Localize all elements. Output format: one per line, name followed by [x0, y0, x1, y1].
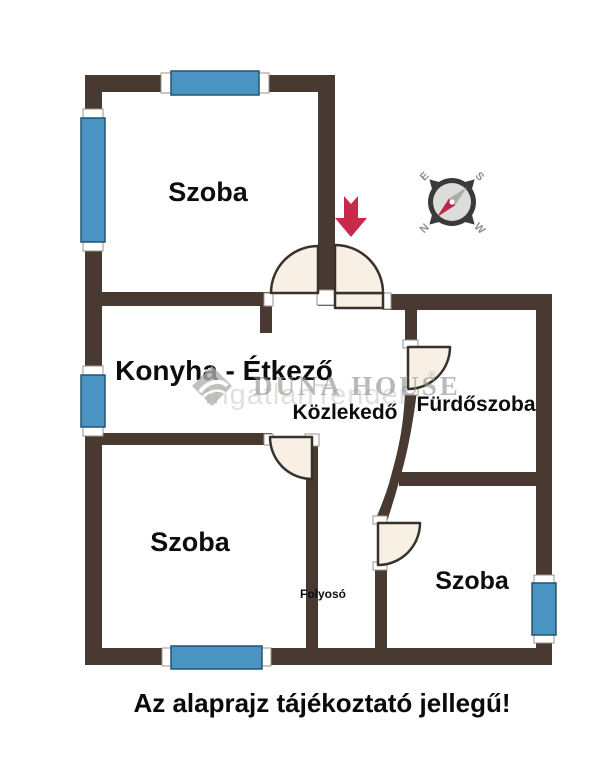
- window-pane: [81, 375, 105, 427]
- compass-label-east: E: [418, 170, 432, 184]
- compass-label-south: S: [472, 170, 486, 184]
- room-label-szoba-bottom-left: Szoba: [150, 527, 230, 557]
- window-cap: [83, 366, 103, 375]
- window-cap: [262, 648, 271, 666]
- watermark-registered-mark: ®: [428, 369, 436, 381]
- room-label-szoba-top: Szoba: [168, 177, 248, 207]
- window-cap: [162, 648, 171, 666]
- window-cap: [259, 73, 269, 93]
- floor-plan-page: E S W N Szoba Konyha - Étkező Közlekedő …: [0, 0, 600, 768]
- window-cap: [83, 242, 103, 251]
- window-room-top-north: [161, 71, 269, 95]
- wall-corridor-right: [375, 563, 387, 648]
- compass-icon: E S W N: [407, 157, 498, 248]
- window-kitchen-west: [81, 366, 105, 436]
- window-cap: [161, 73, 171, 93]
- window-pane: [532, 583, 556, 635]
- room-label-szoba-bottom-right: Szoba: [435, 567, 510, 595]
- door-frame-cap: [264, 293, 273, 306]
- wall-kitchen-stub: [260, 305, 272, 333]
- window-pane: [171, 646, 262, 669]
- window-room-bottom-left-south: [162, 646, 271, 669]
- compass-needle-pivot: [449, 199, 454, 204]
- entrance-arrow-icon: [335, 196, 367, 237]
- floor-plan-svg: E S W N Szoba Konyha - Étkező Közlekedő …: [0, 0, 600, 768]
- door-frame-cap: [317, 290, 336, 305]
- wall-kitchen-bottom: [102, 433, 272, 445]
- door-room-bottom-right: [378, 523, 420, 565]
- disclaimer-caption: Az alaprajz tájékoztató jellegű!: [133, 688, 510, 718]
- window-room-top-west: [81, 109, 105, 251]
- window-pane: [81, 118, 105, 242]
- wall-bathroom-bottom: [399, 472, 536, 486]
- door-entrance-leaf: [335, 293, 383, 308]
- window-cap: [534, 575, 554, 583]
- wall-bottom-exterior: [85, 648, 552, 665]
- window-pane: [171, 71, 259, 95]
- door-room-bottom-left: [270, 437, 312, 479]
- wall-room-top-bottom: [102, 292, 272, 306]
- door-entrance: [335, 245, 383, 293]
- window-cap: [83, 427, 103, 436]
- door-room-top: [271, 246, 318, 293]
- window-room-bottom-right-east: [532, 575, 556, 643]
- window-cap: [83, 109, 103, 118]
- window-cap: [534, 635, 554, 643]
- wall-room-top-right: [318, 75, 335, 306]
- room-label-folyoso: Folyosó: [300, 587, 346, 601]
